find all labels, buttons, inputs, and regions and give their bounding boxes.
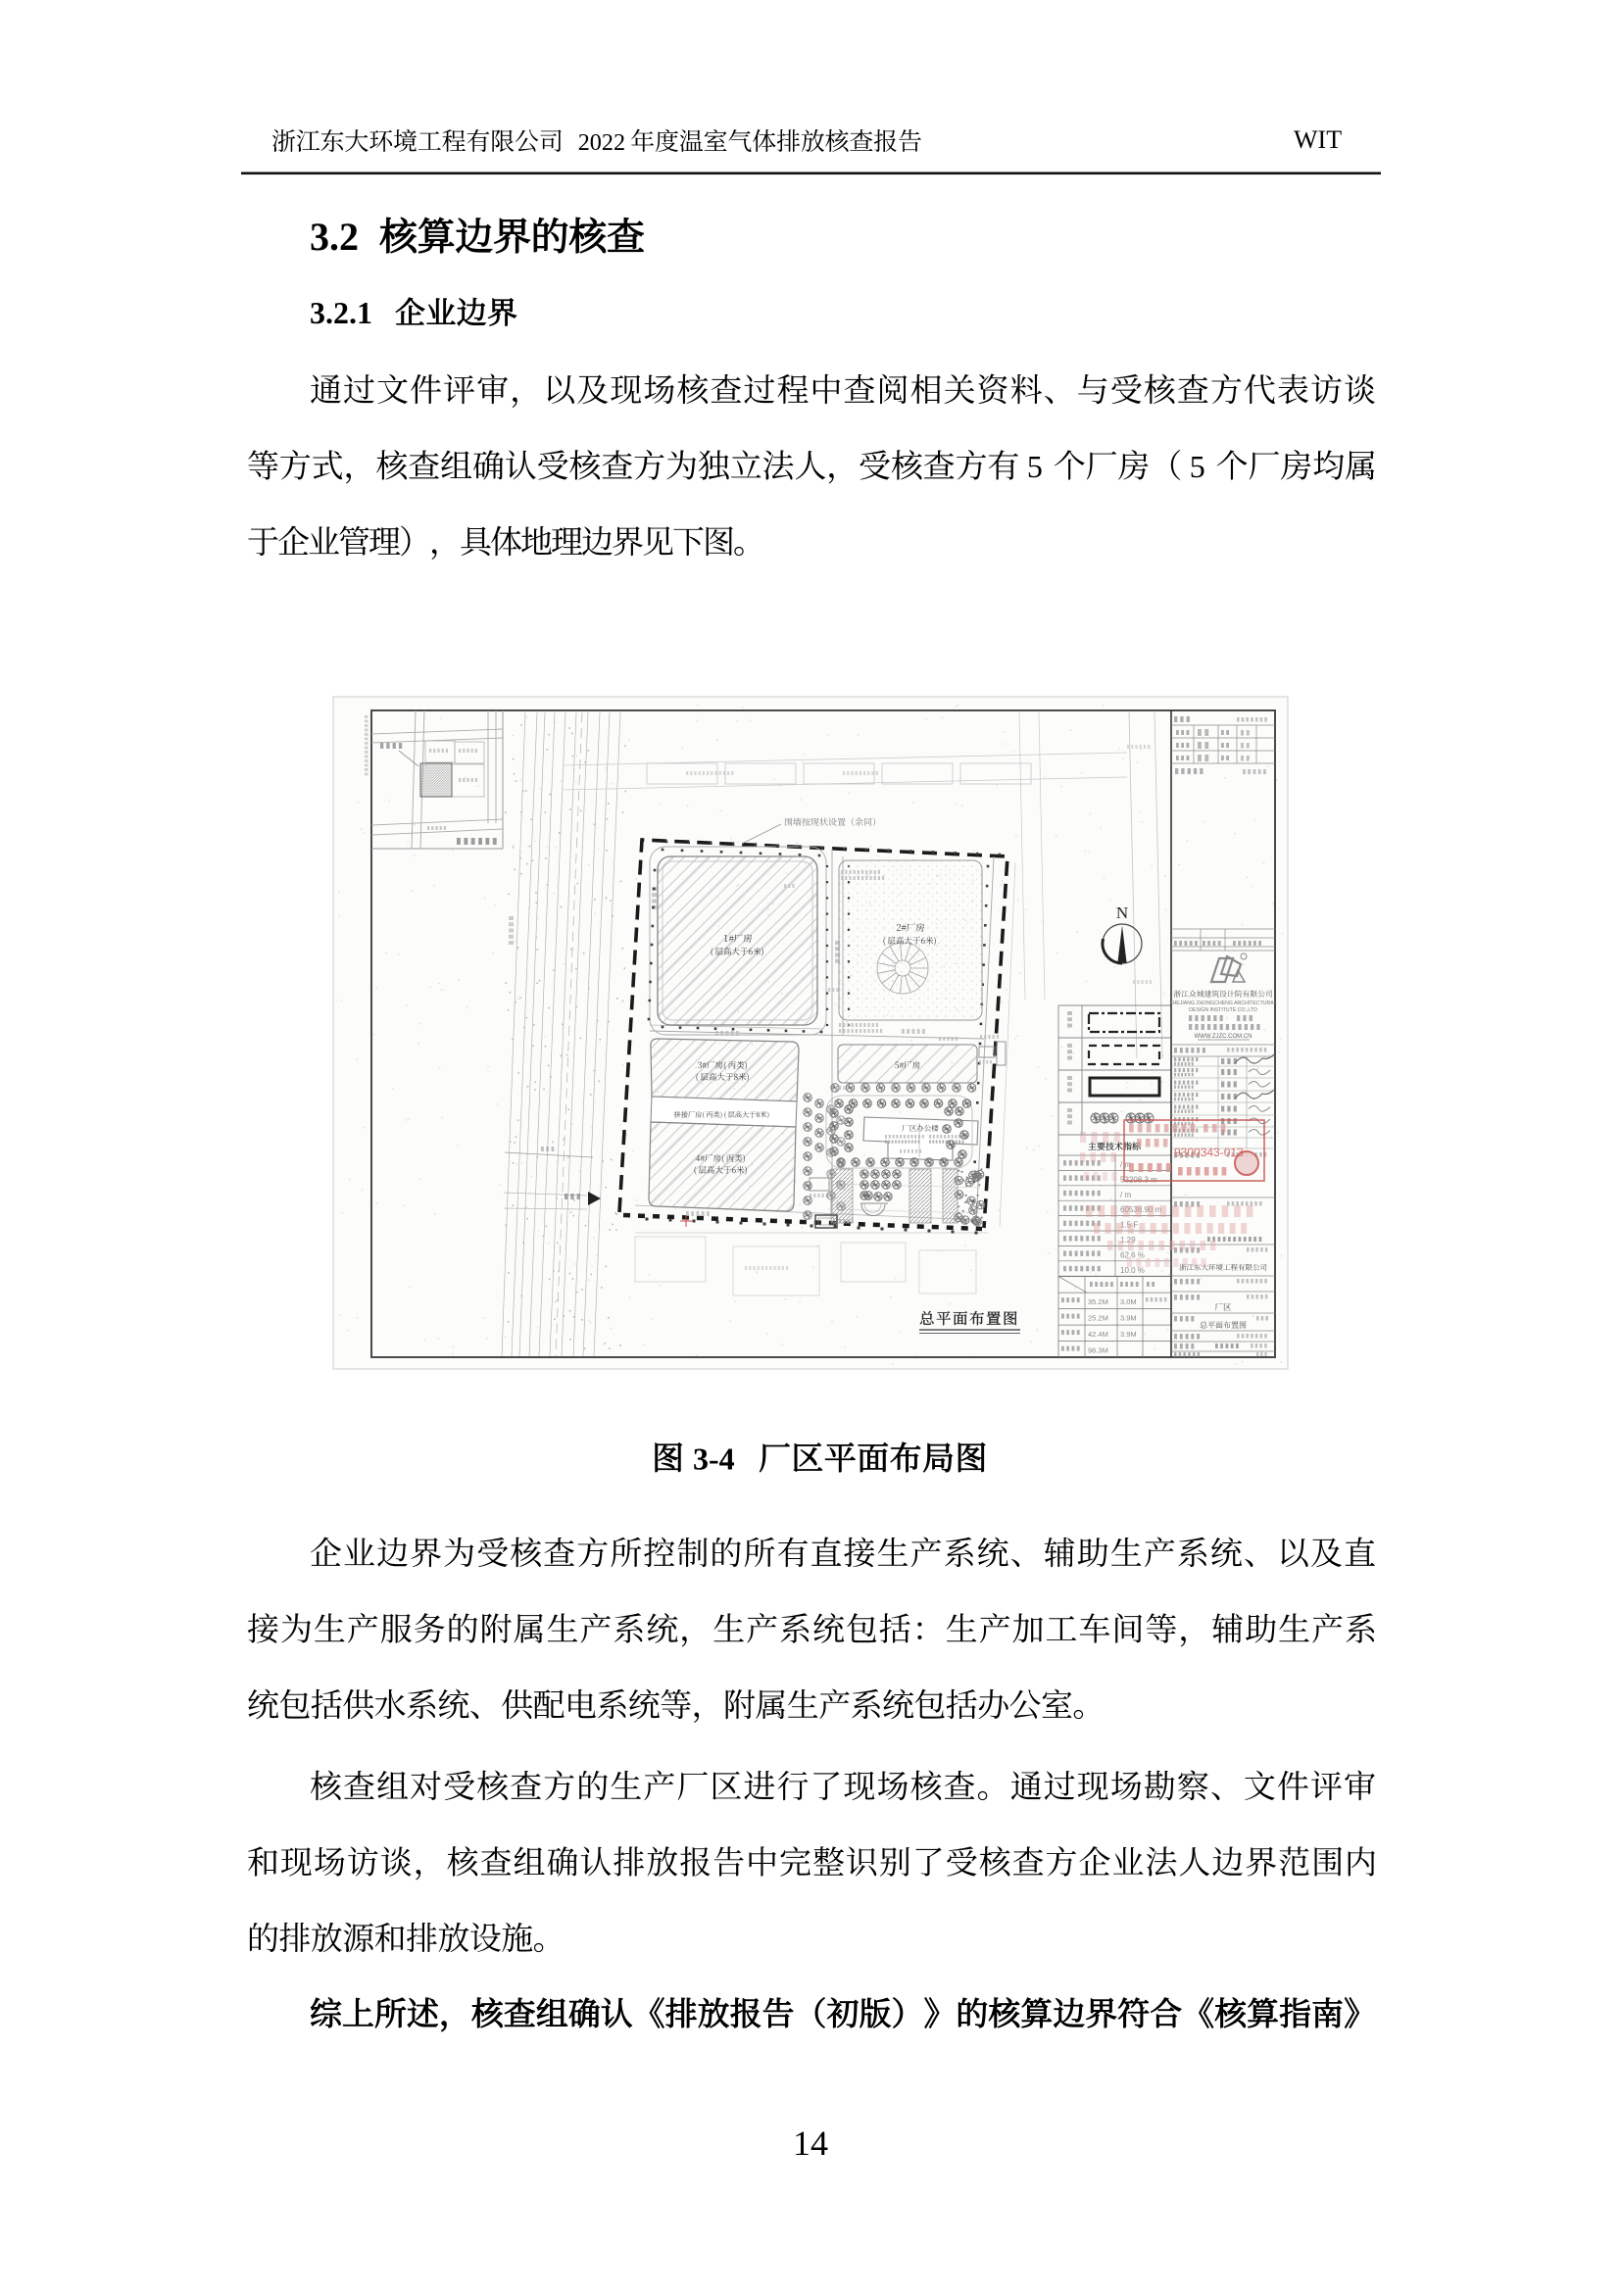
svg-text:N: N [1116, 904, 1128, 922]
svg-text:5: 5 [1027, 449, 1043, 484]
svg-text:10.0 %: 10.0 % [1120, 1266, 1145, 1275]
svg-text:3.9M: 3.9M [1120, 1314, 1137, 1323]
svg-text:53208.3 m: 53208.3 m [1120, 1175, 1157, 1184]
svg-text:WIT: WIT [1294, 125, 1342, 154]
svg-text:96.3M: 96.3M [1088, 1346, 1108, 1355]
svg-text:42.4M: 42.4M [1088, 1330, 1108, 1339]
svg-text:3.2.1: 3.2.1 [310, 295, 372, 330]
svg-text:/ m: / m [1120, 1191, 1131, 1199]
svg-text:14: 14 [793, 2124, 828, 2163]
svg-text:3.9M: 3.9M [1120, 1330, 1137, 1339]
svg-text:3.2: 3.2 [310, 215, 359, 259]
svg-text:3-4: 3-4 [693, 1441, 735, 1477]
svg-text:2022: 2022 [578, 129, 625, 156]
svg-text:5: 5 [1190, 449, 1205, 484]
svg-text:WWW.ZJZC.COM.CN: WWW.ZJZC.COM.CN [1195, 1034, 1253, 1040]
svg-text:35.2M: 35.2M [1088, 1297, 1108, 1306]
svg-text:ZHEJIANG ZHONGCHENG ARCHITECTU: ZHEJIANG ZHONGCHENG ARCHITECTURAL [1169, 1001, 1276, 1006]
svg-text:9300343-013: 9300343-013 [1174, 1146, 1244, 1159]
svg-text:DESIGN INSTITUTE CO.,LTD: DESIGN INSTITUTE CO.,LTD [1189, 1007, 1257, 1013]
svg-text:25.2M: 25.2M [1088, 1314, 1108, 1323]
svg-text:3.0M: 3.0M [1120, 1297, 1137, 1306]
